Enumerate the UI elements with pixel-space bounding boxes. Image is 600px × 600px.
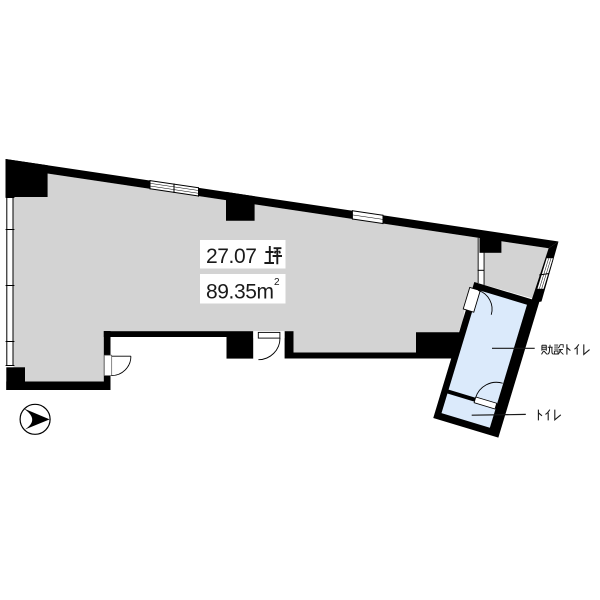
svg-text:27.07: 27.07 xyxy=(206,245,257,268)
svg-text:89.35m: 89.35m xyxy=(206,281,274,304)
svg-text:2: 2 xyxy=(274,277,280,288)
